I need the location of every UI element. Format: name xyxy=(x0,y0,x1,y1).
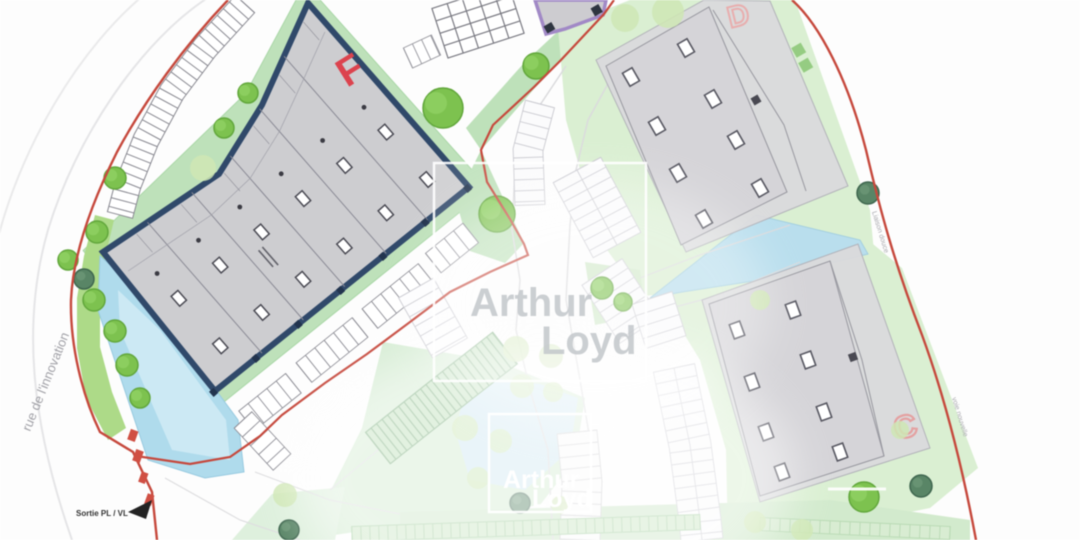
svg-text:Loyd: Loyd xyxy=(541,319,637,363)
svg-text:Loyd: Loyd xyxy=(532,485,592,513)
